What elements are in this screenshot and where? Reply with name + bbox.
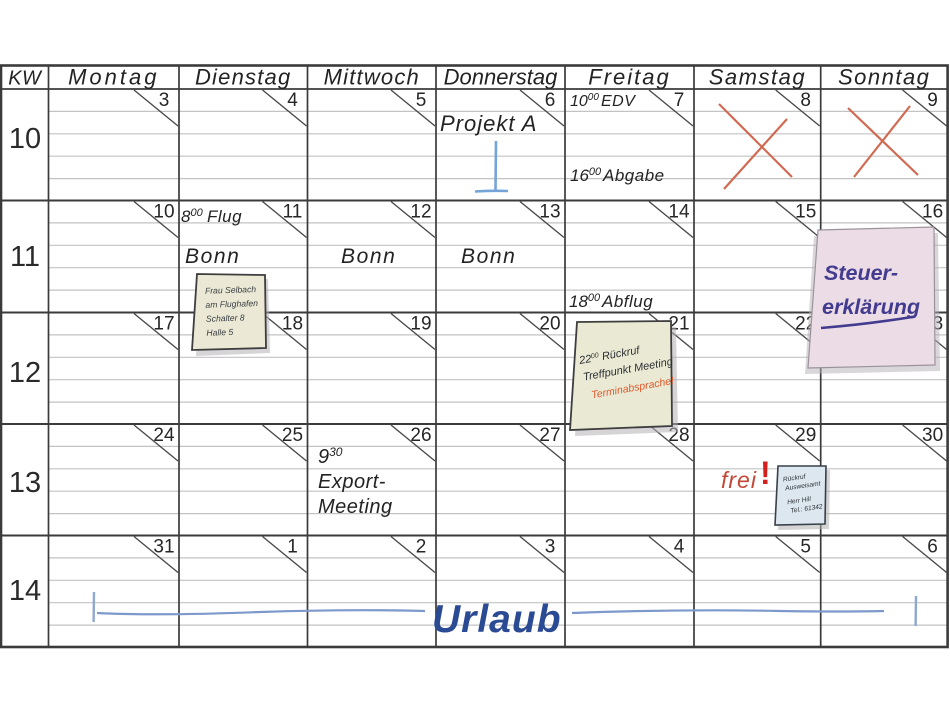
svg-text:20: 20 — [539, 314, 560, 335]
svg-text:2: 2 — [416, 537, 427, 558]
svg-text:18: 18 — [282, 314, 303, 335]
svg-text:29: 29 — [795, 425, 816, 446]
svg-text:6: 6 — [927, 537, 938, 558]
svg-text:Projekt A: Projekt A — [440, 111, 537, 136]
svg-text:1: 1 — [287, 537, 298, 558]
svg-text:5: 5 — [416, 90, 427, 111]
svg-text:7: 7 — [674, 90, 685, 111]
svg-text:Freitag: Freitag — [588, 65, 670, 90]
svg-text:am Flughafen: am Flughafen — [205, 298, 258, 310]
svg-text:Donnerstag: Donnerstag — [444, 65, 559, 90]
svg-text:15: 15 — [795, 202, 816, 223]
svg-text:Steuer-: Steuer- — [824, 261, 898, 285]
svg-text:13: 13 — [539, 202, 560, 223]
svg-text:Urlaub: Urlaub — [432, 598, 562, 641]
svg-text:12: 12 — [9, 357, 41, 389]
svg-text:Bonn: Bonn — [461, 245, 516, 268]
svg-text:Samstag: Samstag — [709, 65, 806, 90]
svg-text:Meeting: Meeting — [318, 496, 393, 518]
svg-text:erklärung: erklärung — [822, 295, 920, 319]
svg-text:Bonn: Bonn — [341, 245, 396, 268]
svg-text:Abgabe: Abgabe — [602, 166, 665, 185]
svg-text:Dienstag: Dienstag — [195, 65, 291, 90]
svg-text:KW: KW — [8, 68, 43, 90]
svg-text:25: 25 — [282, 425, 303, 446]
svg-text:EDV: EDV — [601, 93, 636, 110]
svg-text:27: 27 — [539, 425, 560, 446]
svg-text:Mittwoch: Mittwoch — [324, 65, 420, 90]
svg-text:4: 4 — [287, 90, 298, 111]
svg-text:Bonn: Bonn — [185, 245, 240, 268]
svg-text:!: ! — [760, 455, 771, 491]
svg-text:frei: frei — [721, 467, 757, 493]
svg-text:17: 17 — [153, 314, 174, 335]
svg-text:10: 10 — [9, 123, 41, 155]
svg-text:Flug: Flug — [207, 207, 242, 226]
svg-text:8: 8 — [800, 90, 811, 111]
svg-text:26: 26 — [410, 425, 431, 446]
svg-text:10: 10 — [153, 202, 174, 223]
svg-text:11: 11 — [10, 241, 40, 273]
svg-text:30: 30 — [922, 425, 943, 446]
svg-text:9: 9 — [927, 90, 938, 111]
svg-text:31: 31 — [153, 537, 174, 558]
svg-text:3: 3 — [545, 537, 556, 558]
svg-text:3: 3 — [159, 90, 170, 111]
svg-text:12: 12 — [410, 202, 431, 223]
svg-text:5: 5 — [800, 537, 811, 558]
svg-text:Sonntag: Sonntag — [838, 65, 930, 90]
svg-text:Montag: Montag — [68, 65, 159, 90]
svg-text:14: 14 — [668, 202, 690, 223]
svg-text:Abflug: Abflug — [601, 292, 653, 311]
svg-text:13: 13 — [9, 467, 41, 499]
svg-text:Frau Selbach: Frau Selbach — [205, 284, 257, 296]
svg-text:19: 19 — [410, 314, 431, 335]
svg-text:4: 4 — [674, 537, 685, 558]
svg-text:Export-: Export- — [318, 471, 386, 493]
svg-text:16: 16 — [922, 202, 943, 223]
svg-text:Schalter 8: Schalter 8 — [206, 312, 245, 323]
svg-text:Halle 5: Halle 5 — [206, 327, 233, 338]
svg-text:6: 6 — [545, 90, 556, 111]
svg-text:11: 11 — [283, 202, 303, 223]
svg-text:24: 24 — [153, 425, 175, 446]
svg-text:14: 14 — [9, 575, 41, 607]
